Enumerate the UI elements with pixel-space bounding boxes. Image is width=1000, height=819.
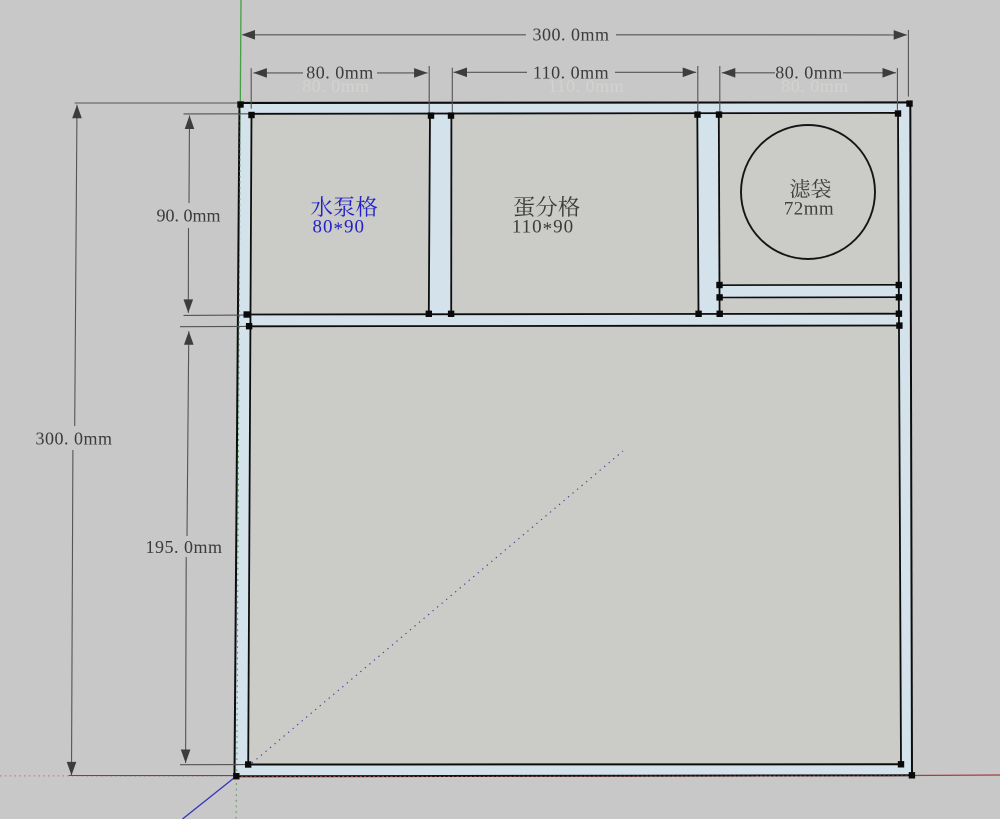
svg-text:110*90: 110*90 [512, 216, 574, 240]
svg-text:110. 0mm: 110. 0mm [548, 76, 624, 96]
svg-text:195. 0mm: 195. 0mm [145, 537, 222, 557]
svg-text:80. 0mm: 80. 0mm [302, 76, 370, 96]
svg-text:300. 0mm: 300. 0mm [35, 428, 112, 448]
svg-text:80*90: 80*90 [313, 216, 366, 240]
svg-text:90. 0mm: 90. 0mm [156, 206, 220, 226]
svg-text:300. 0mm: 300. 0mm [532, 25, 609, 45]
svg-text:72mm: 72mm [784, 199, 834, 220]
svg-text:80. 0mm: 80. 0mm [781, 76, 849, 96]
